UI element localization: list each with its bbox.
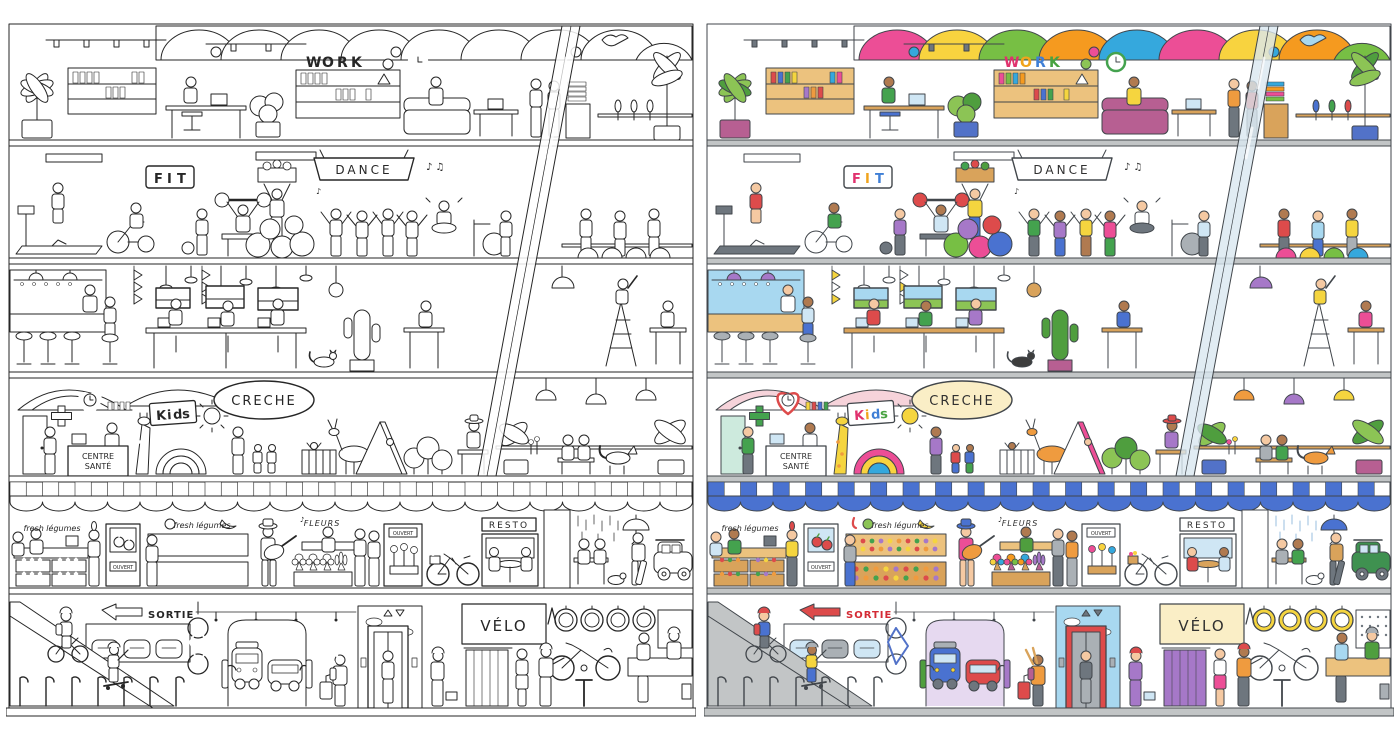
illustration-stage: W O R K [0,0,1400,740]
building-lineart [6,24,696,716]
panel-colored [704,18,1394,722]
building-colored [704,24,1394,716]
panel-lineart [6,18,696,722]
